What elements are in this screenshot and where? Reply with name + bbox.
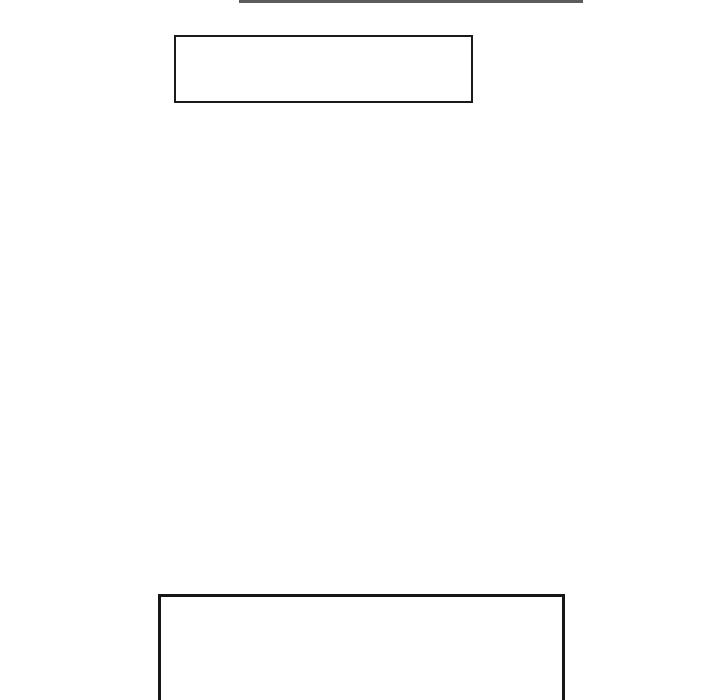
upper-empty-box <box>174 35 473 103</box>
page-canvas <box>0 0 720 700</box>
lower-empty-box <box>158 594 565 700</box>
cropped-box-bottom-edge <box>239 0 583 3</box>
